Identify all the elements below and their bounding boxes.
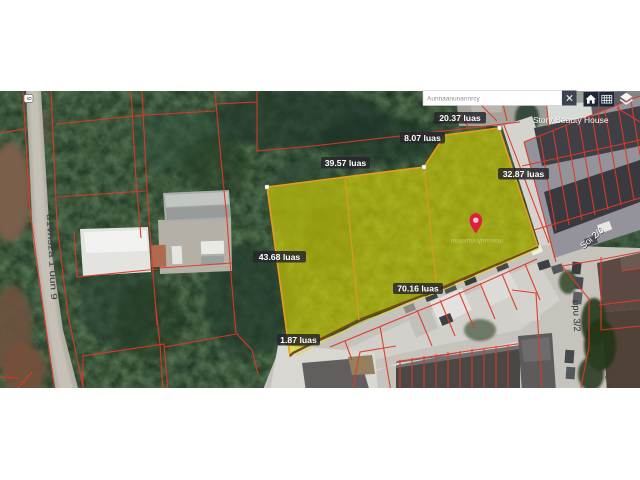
svg-text:39.57 luas: 39.57 luas (325, 158, 367, 168)
svg-text:muavnuuynnswau: muavnuuynnswau (451, 238, 504, 245)
svg-text:1.87 luas: 1.87 luas (280, 335, 317, 345)
svg-text:8.07 luas: 8.07 luas (404, 133, 441, 143)
svg-text:upu 3/2: upu 3/2 (570, 300, 582, 332)
svg-text:32.87 luas: 32.87 luas (503, 169, 545, 179)
svg-text:43.68 luas: 43.68 luas (259, 252, 301, 262)
svg-text:70.16 luas: 70.16 luas (397, 284, 439, 294)
svg-text:Aunnaanunannrcy: Aunnaanunannrcy (427, 96, 481, 103)
svg-text:9: 9 (25, 97, 32, 101)
svg-text:20.37 luas: 20.37 luas (439, 113, 481, 123)
svg-text:Story Beauty House: Story Beauty House (533, 115, 609, 125)
